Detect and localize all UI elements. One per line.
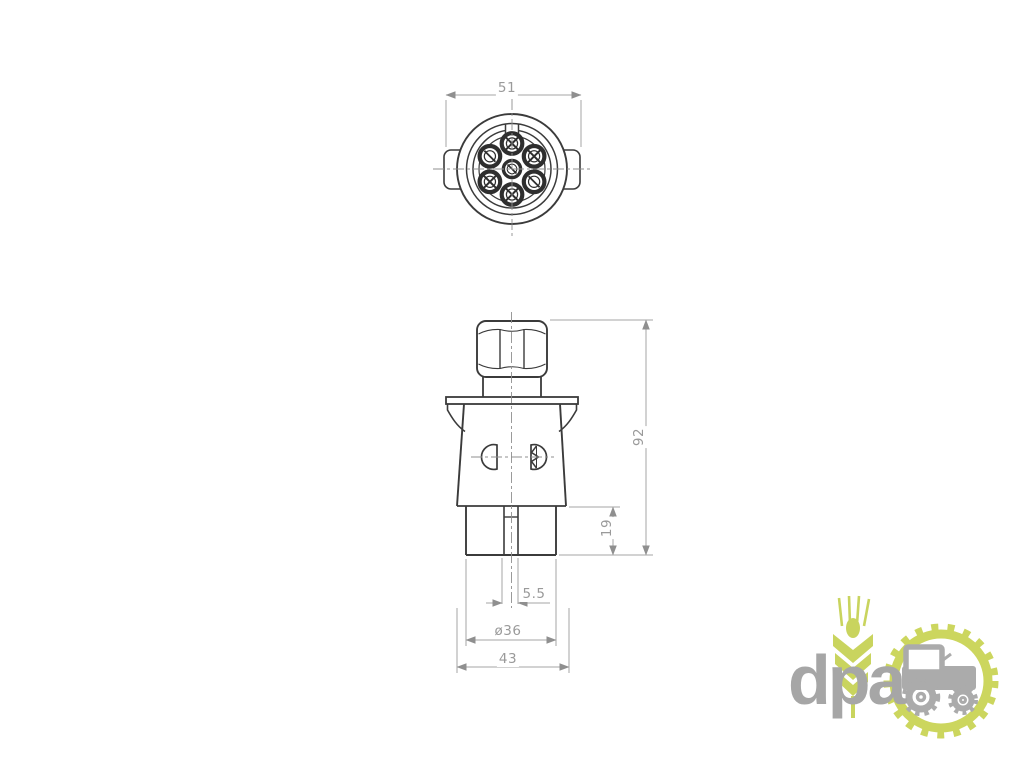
- dim-flange-width: 43: [497, 651, 519, 667]
- front-view: [433, 99, 591, 237]
- body-left: [457, 404, 464, 506]
- pin-bottom-right: [524, 172, 545, 193]
- page: 51 92 19 5.5 ø36 43: [0, 0, 1024, 768]
- flange: [446, 397, 578, 404]
- dim-barrel-height: 19: [599, 517, 615, 539]
- dim-barrel-diameter: ø36: [493, 623, 524, 639]
- logo-text: dpa: [788, 645, 903, 715]
- pin-top-right: [524, 146, 545, 167]
- side-dim-lines: [457, 320, 653, 673]
- hex-nut: [477, 321, 547, 377]
- tractor-icon: [902, 647, 976, 714]
- body-right: [560, 404, 566, 506]
- dim-overall-height: 92: [631, 426, 647, 448]
- dim-slot-width: 5.5: [521, 586, 548, 602]
- dpa-logo: dpa: [778, 588, 1018, 758]
- dim-top-width: 51: [496, 80, 518, 96]
- pin-bottom-left: [480, 172, 501, 193]
- pin-top-left: [480, 146, 501, 167]
